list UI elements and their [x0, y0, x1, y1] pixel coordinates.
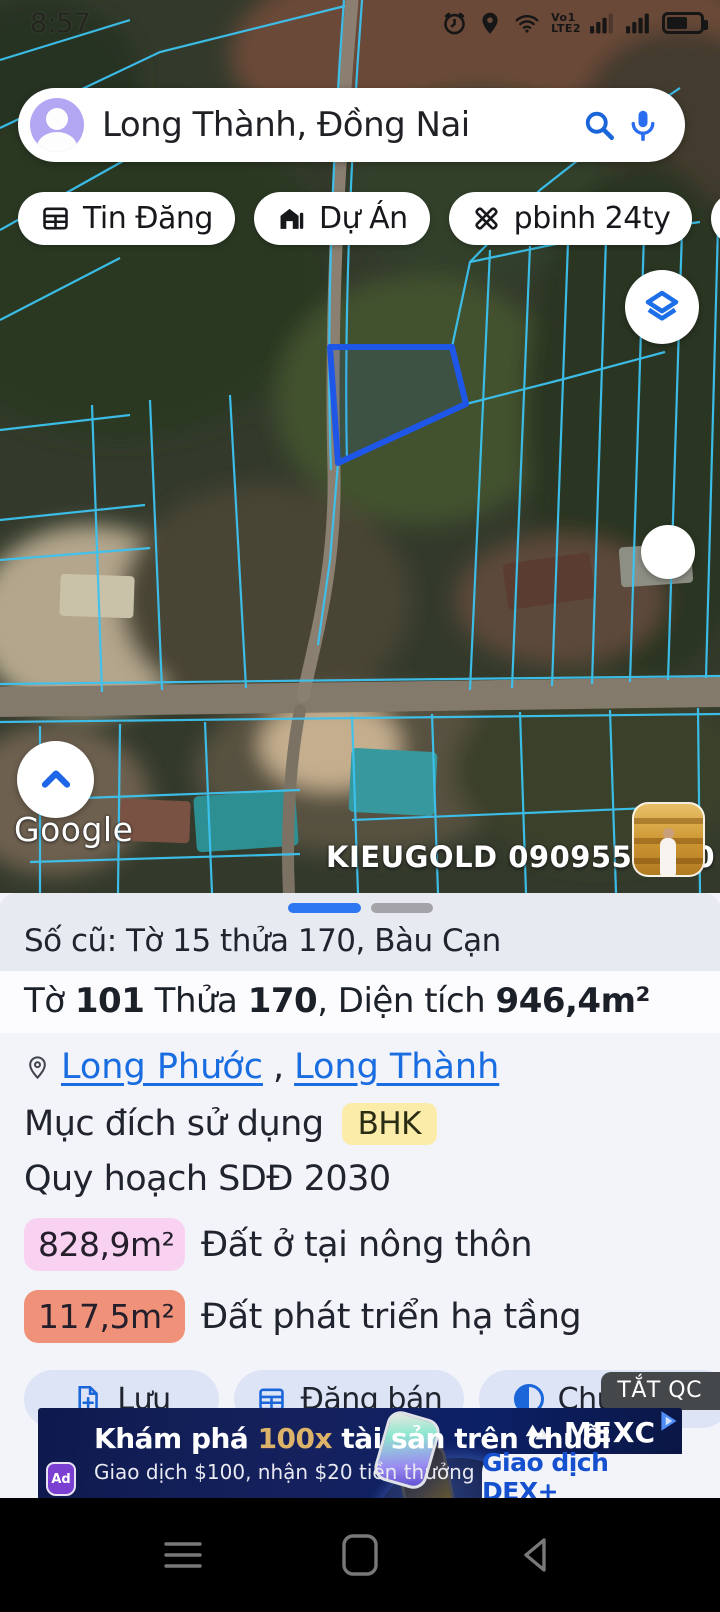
zone-row-residential: 828,9m² Đất ở tại nông thôn [0, 1218, 720, 1271]
clock-time: 8:57 [30, 8, 91, 39]
district-link[interactable]: Long Thành [294, 1047, 499, 1087]
microphone-icon [625, 107, 661, 143]
filter-chips: Tin Đăng Dự Án pbinh 24ty mtp [0, 192, 720, 245]
search-icon [581, 107, 617, 143]
back-triangle-icon [514, 1533, 558, 1577]
purpose-label: Mục đích sử dụng [24, 1104, 324, 1144]
chip-mtp[interactable]: mtp [711, 192, 720, 245]
location-row: Long Phước, Long Thành [0, 1047, 720, 1087]
plot-number: 170 [248, 981, 317, 1021]
satellite-map[interactable]: 8:57 Vo1 LTE2 Long Thành, Đồng Nai [0, 0, 720, 893]
parcel-area: 946,4m² [496, 981, 650, 1021]
phone-screen: 8:57 Vo1 LTE2 Long Thành, Đồng Nai [0, 0, 720, 1612]
map-side-button[interactable] [641, 525, 695, 579]
crossed-tools-icon [471, 203, 502, 234]
voice-search-button[interactable] [621, 103, 665, 147]
ward-link[interactable]: Long Phước [61, 1047, 263, 1087]
nav-menu-button[interactable] [143, 1498, 223, 1612]
ad-badge[interactable]: Ad [46, 1462, 76, 1496]
chip-pbinh-24ty[interactable]: pbinh 24ty [449, 192, 693, 245]
status-bar: 8:57 Vo1 LTE2 [0, 0, 720, 46]
search-bar[interactable]: Long Thành, Đồng Nai [18, 88, 685, 162]
collapse-sheet-button[interactable] [17, 741, 94, 818]
zone-label: Đất phát triển hạ tầng [201, 1297, 581, 1337]
location-icon [477, 10, 503, 36]
menu-icon [160, 1535, 206, 1575]
ad-cta-button[interactable]: Giao dịch DEX+ [482, 1454, 682, 1500]
avatar[interactable] [30, 98, 84, 152]
ad-subline: Giao dịch $100, nhận $20 tiền thưởng [94, 1460, 475, 1484]
listing-grid-icon [40, 203, 71, 234]
signal-icon-sim1 [590, 12, 617, 34]
wifi-icon [512, 10, 542, 36]
pager-dot [371, 903, 433, 913]
nav-home-button[interactable] [320, 1498, 400, 1612]
map-layers-button[interactable] [625, 270, 699, 344]
old-parcel-reference: Số cũ: Tờ 15 thửa 170, Bàu Cạn [0, 923, 720, 959]
sheet-handle[interactable] [0, 901, 720, 923]
dismiss-ad-button[interactable]: TẮT QC [601, 1372, 720, 1410]
planning-label: Quy hoạch SDĐ 2030 [0, 1159, 720, 1199]
chevron-up-icon [34, 758, 78, 802]
land-purpose-row: Mục đích sử dụng BHK [0, 1103, 720, 1145]
volte-indicator: Vo1 LTE2 [551, 12, 581, 34]
ad-headline-highlight: 100x [258, 1422, 333, 1455]
chip-tin-dang[interactable]: Tin Đăng [18, 192, 235, 245]
chip-du-an[interactable]: Dự Án [254, 192, 430, 245]
sheet-header: Số cũ: Tờ 15 thửa 170, Bàu Cạn [0, 893, 720, 971]
mexc-logo-icon [522, 1420, 556, 1446]
brand-logo: MEXC [522, 1416, 656, 1449]
layers-icon [641, 286, 683, 328]
system-navigation-bar [0, 1498, 720, 1612]
signal-icon-sim2 [626, 12, 653, 34]
ad-banner[interactable]: Khám phá 100x tài sản trên chuỗi Giao dị… [38, 1408, 682, 1500]
zone-row-infrastructure: 117,5m² Đất phát triển hạ tầng [0, 1290, 720, 1343]
parcel-summary: Tờ 101 Thửa 170, Diện tích 946,4m² [0, 971, 720, 1033]
search-input[interactable]: Long Thành, Đồng Nai [102, 105, 577, 145]
zone-area-badge: 117,5m² [24, 1290, 185, 1343]
google-watermark: Google [14, 810, 133, 849]
purpose-code-badge: BHK [342, 1103, 437, 1145]
pager-dot-active [288, 903, 361, 913]
pin-outline-icon [24, 1054, 51, 1081]
search-button[interactable] [577, 103, 621, 147]
home-square-icon [339, 1532, 381, 1578]
zone-label: Đất ở tại nông thôn [201, 1225, 532, 1265]
alarm-icon [441, 10, 468, 37]
battery-icon [662, 12, 704, 34]
sheet-number: 101 [75, 981, 144, 1021]
project-home-icon [276, 203, 307, 234]
zone-area-badge: 828,9m² [24, 1218, 185, 1271]
gold-shop-ad-thumbnail[interactable] [632, 802, 705, 877]
status-icons: Vo1 LTE2 [441, 10, 704, 37]
nav-back-button[interactable] [496, 1498, 576, 1612]
adchoices-icon[interactable] [656, 1408, 682, 1438]
